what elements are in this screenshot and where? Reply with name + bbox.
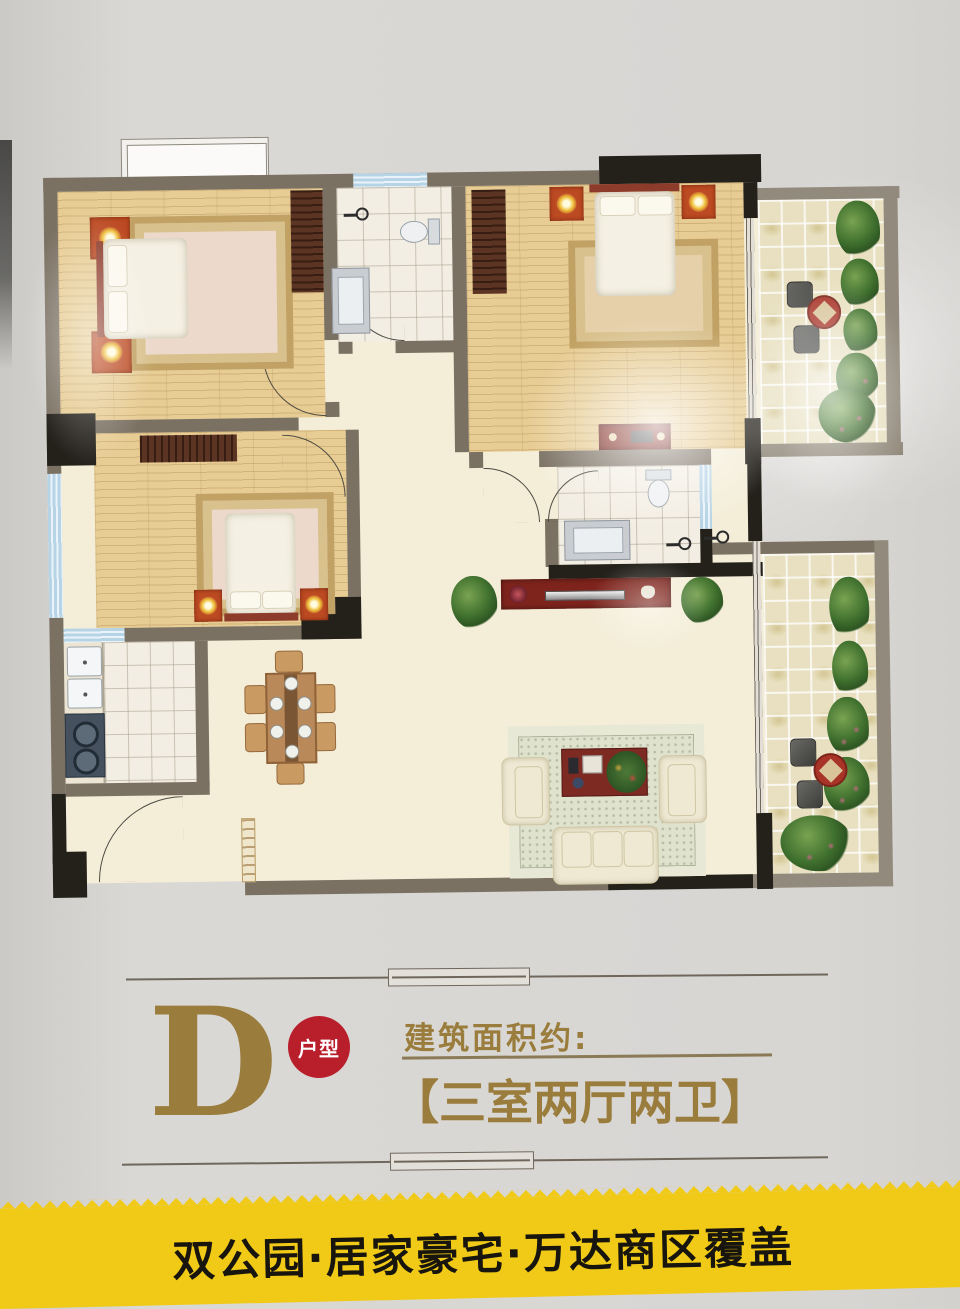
toilet-icon: [647, 479, 669, 507]
unit-type-badge: 户型: [288, 1016, 350, 1078]
sawtooth-edge: [0, 1180, 960, 1209]
wardrobe: [140, 434, 237, 462]
nightstand: [194, 590, 222, 622]
balcony-chair: [793, 325, 819, 353]
armchair: [501, 757, 550, 826]
flower-arrangement: [606, 751, 647, 794]
wall-segment: [346, 430, 361, 597]
nightstand: [300, 588, 328, 620]
dining-chair: [314, 722, 336, 751]
tv-cabinet: [501, 577, 671, 609]
kitchen-floor: [104, 641, 197, 783]
wall-segment: [469, 452, 483, 468]
wall-segment: [756, 813, 773, 889]
remote: [568, 758, 578, 774]
floor-plan: [43, 136, 910, 908]
divider-ornament-bottom: [390, 1151, 534, 1171]
wall-segment: [747, 451, 762, 541]
shower-icon: [678, 537, 691, 550]
unit-letter: D: [148, 988, 278, 1138]
dining-chair: [276, 762, 304, 784]
photo-edge-shadow: [0, 140, 12, 370]
nightstand: [549, 186, 583, 220]
window: [63, 628, 124, 643]
kitchen-sink: [67, 678, 102, 708]
wall-segment: [747, 442, 903, 457]
wall-segment: [712, 540, 887, 554]
wall-segment: [325, 402, 339, 417]
plant: [840, 258, 879, 309]
wall-segment: [49, 618, 65, 794]
nightstand: [681, 185, 715, 219]
layout-text: 【三室两厅两卫】: [392, 1064, 768, 1133]
dresser: [599, 423, 671, 450]
plant: [681, 577, 724, 626]
wall-segment: [66, 782, 210, 797]
sink-vanity: [564, 520, 631, 561]
pillow: [599, 196, 635, 217]
wall-segment: [549, 562, 763, 579]
pillow: [108, 291, 129, 333]
hall-runner-rug: [241, 818, 256, 882]
pillow: [107, 245, 128, 287]
wall-segment: [46, 413, 96, 466]
kitchen-sink: [67, 646, 102, 676]
dining-chair: [245, 723, 267, 752]
banner-text: 双公园·居家豪宅·万达商区覆盖: [0, 1209, 960, 1293]
bed-headboard: [224, 612, 298, 621]
pillow: [230, 591, 261, 609]
balcony-chair: [797, 780, 823, 808]
wall-segment: [53, 851, 88, 897]
sink-vanity: [331, 267, 370, 334]
dining-chair: [275, 650, 303, 672]
divider-ornament-top: [388, 968, 530, 987]
wardrobe: [471, 190, 506, 294]
area-label: 建筑面积约:: [404, 1013, 589, 1058]
armchair: [658, 755, 707, 824]
wall-segment: [883, 186, 901, 454]
dining-table: [265, 672, 317, 764]
coffee-table: [561, 748, 648, 797]
wall-segment: [545, 519, 559, 567]
plant: [843, 308, 878, 354]
bowl: [573, 778, 584, 789]
window: [47, 474, 63, 618]
dining-chair: [313, 684, 335, 713]
toilet-tank: [428, 218, 440, 244]
wall-segment: [743, 182, 758, 218]
wall-segment: [338, 342, 352, 354]
shower-icon: [356, 207, 369, 220]
wall-segment: [195, 641, 210, 786]
pillow: [637, 195, 672, 215]
stove: [65, 713, 106, 778]
book: [582, 755, 602, 773]
window: [353, 173, 427, 188]
pillow: [262, 591, 293, 609]
wall-segment: [539, 449, 711, 467]
dining-chair: [244, 685, 266, 714]
wall-segment: [700, 529, 713, 565]
sofa: [552, 825, 659, 884]
wall-segment: [599, 154, 761, 184]
balcony-chair: [790, 738, 816, 766]
bottom-banner: 双公园·居家豪宅·万达商区覆盖: [0, 1187, 960, 1309]
handle-icon: [716, 530, 729, 543]
wall-segment: [743, 186, 899, 200]
wardrobe: [290, 190, 323, 292]
wall-segment: [753, 872, 893, 888]
window: [699, 465, 712, 529]
